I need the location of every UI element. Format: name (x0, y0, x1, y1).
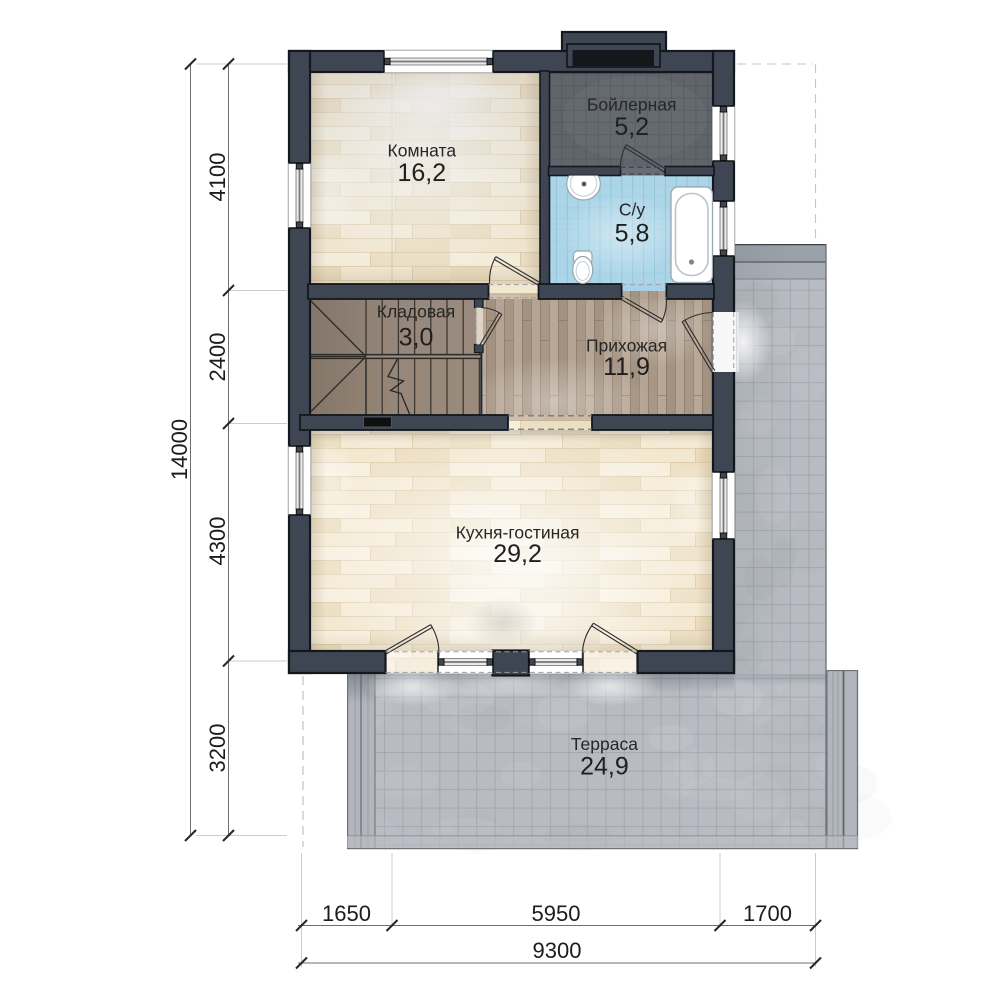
svg-text:3200: 3200 (205, 724, 230, 773)
svg-text:4100: 4100 (205, 153, 230, 202)
svg-text:3,0: 3,0 (399, 324, 434, 352)
svg-text:2400: 2400 (205, 333, 230, 382)
svg-text:4300: 4300 (205, 517, 230, 566)
svg-text:С/у: С/у (619, 200, 646, 220)
svg-text:Комната: Комната (388, 141, 457, 161)
svg-text:29,2: 29,2 (493, 540, 542, 568)
svg-text:1650: 1650 (322, 901, 371, 926)
svg-text:5950: 5950 (532, 901, 581, 926)
svg-text:24,9: 24,9 (580, 753, 629, 781)
svg-text:16,2: 16,2 (397, 159, 446, 187)
svg-text:Бойлерная: Бойлерная (587, 95, 677, 115)
svg-text:Терраса: Терраса (571, 734, 638, 754)
svg-text:1700: 1700 (743, 901, 792, 926)
svg-text:11,9: 11,9 (603, 353, 650, 381)
svg-text:5,2: 5,2 (614, 113, 649, 141)
svg-text:14000: 14000 (167, 419, 192, 480)
svg-text:5,8: 5,8 (615, 219, 650, 247)
svg-text:9300: 9300 (533, 938, 582, 963)
svg-text:Кладовая: Кладовая (377, 302, 455, 322)
